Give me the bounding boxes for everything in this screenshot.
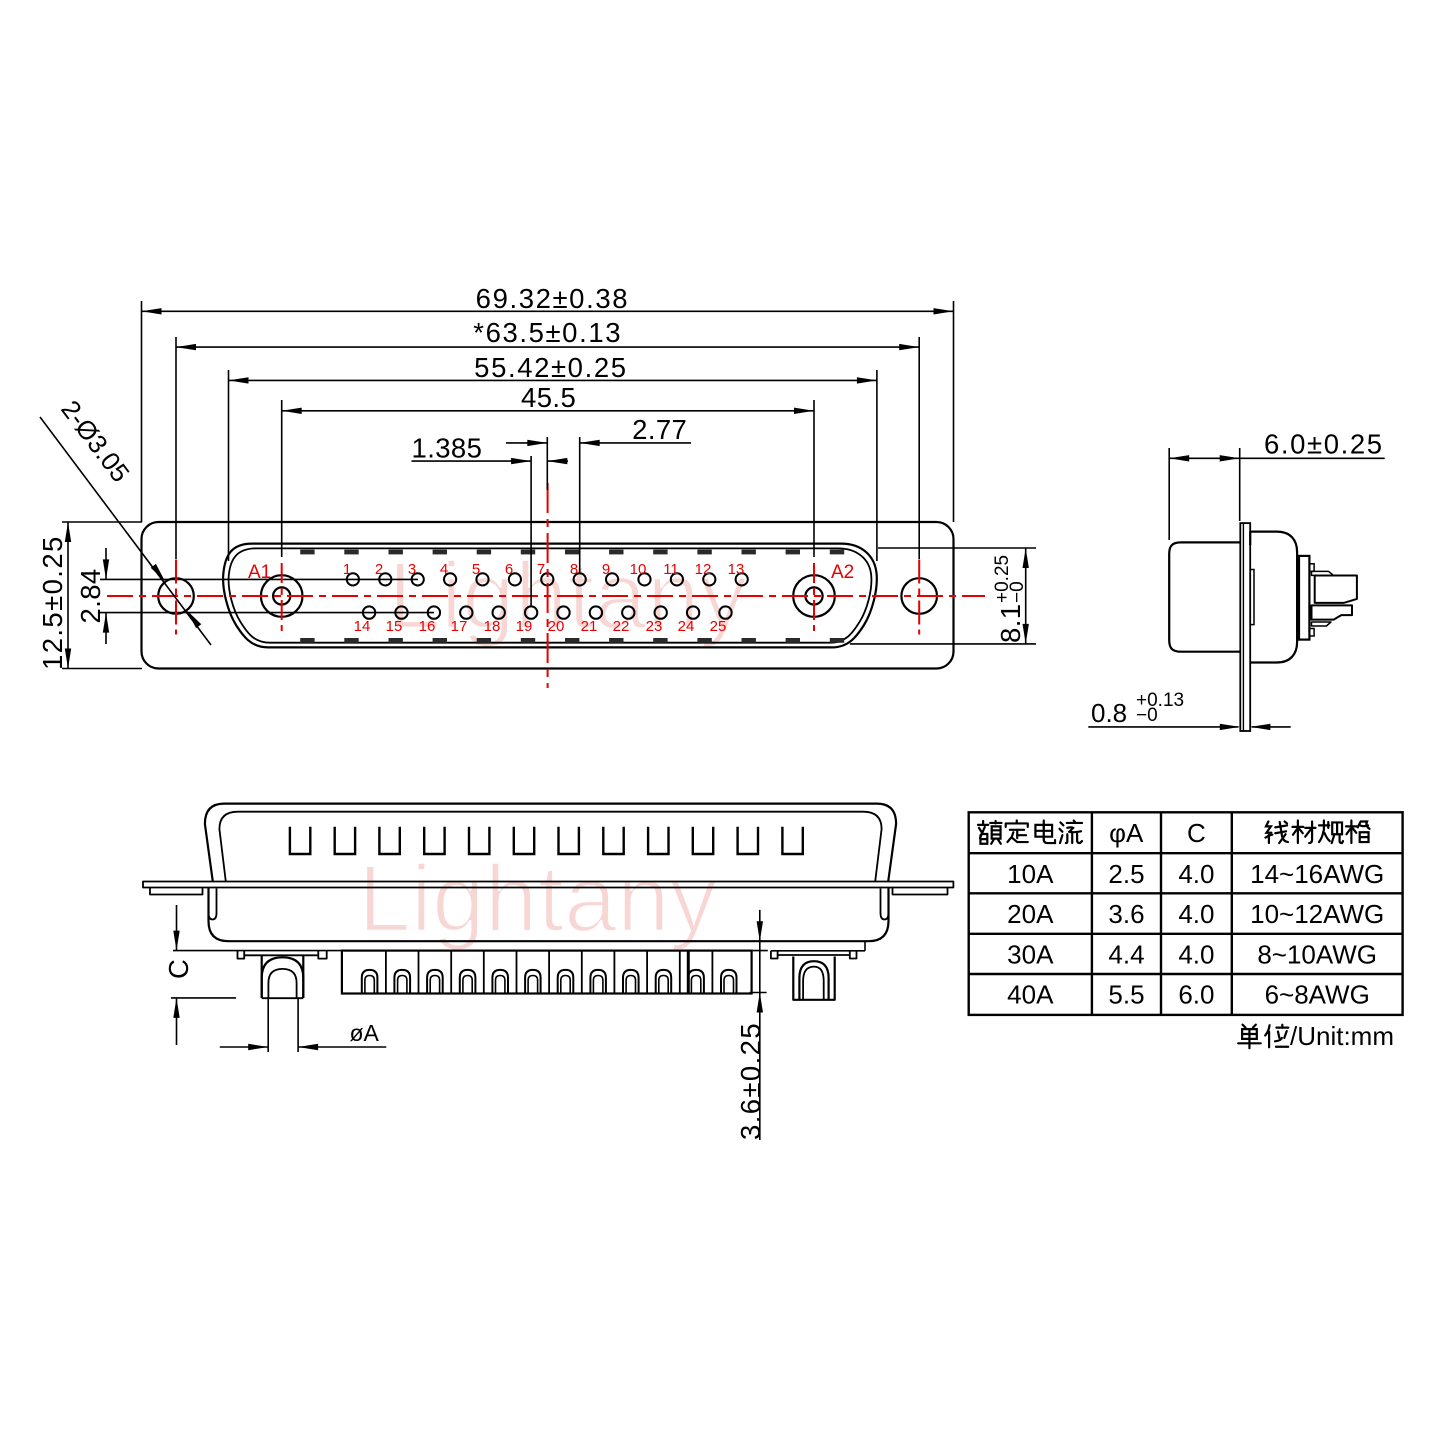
- svg-text:17: 17: [451, 618, 468, 635]
- svg-text:30A: 30A: [1007, 939, 1054, 969]
- svg-text:10~12AWG: 10~12AWG: [1250, 899, 1384, 929]
- svg-text:−0: −0: [1007, 581, 1028, 603]
- svg-text:2: 2: [375, 561, 383, 578]
- svg-text:19: 19: [516, 618, 533, 635]
- svg-text:4.0: 4.0: [1178, 859, 1214, 889]
- svg-text:−0: −0: [1136, 705, 1158, 726]
- svg-text:3: 3: [408, 561, 416, 578]
- svg-text:40A: 40A: [1007, 980, 1054, 1010]
- svg-text:5.5: 5.5: [1108, 980, 1144, 1010]
- svg-text:16: 16: [419, 618, 436, 635]
- svg-text:3.6±0.25: 3.6±0.25: [735, 1022, 766, 1140]
- svg-text:/Unit:mm: /Unit:mm: [1290, 1021, 1394, 1051]
- svg-text:C: C: [163, 959, 194, 979]
- svg-text:0.8: 0.8: [1091, 698, 1127, 728]
- svg-text:8: 8: [570, 561, 578, 578]
- svg-text:φA: φA: [1109, 818, 1144, 848]
- svg-text:5: 5: [472, 561, 480, 578]
- svg-text:24: 24: [678, 618, 695, 635]
- svg-text:55.42±0.25: 55.42±0.25: [474, 352, 627, 383]
- svg-text:9: 9: [602, 561, 610, 578]
- svg-text:6.0±0.25: 6.0±0.25: [1264, 429, 1384, 460]
- svg-text:20A: 20A: [1007, 899, 1054, 929]
- svg-text:*63.5±0.13: *63.5±0.13: [473, 317, 622, 348]
- svg-text:4.4: 4.4: [1108, 939, 1144, 969]
- svg-text:4.0: 4.0: [1178, 899, 1214, 929]
- svg-text:1.385: 1.385: [412, 433, 483, 464]
- svg-text:8.1: 8.1: [995, 604, 1026, 643]
- svg-text:15: 15: [386, 618, 403, 635]
- svg-text:23: 23: [646, 618, 663, 635]
- svg-text:3.6: 3.6: [1108, 899, 1144, 929]
- svg-text:12.5±0.25: 12.5±0.25: [37, 535, 68, 670]
- svg-text:25: 25: [710, 618, 727, 635]
- svg-text:4.0: 4.0: [1178, 939, 1214, 969]
- svg-text:22: 22: [613, 618, 630, 635]
- svg-text:øA: øA: [350, 1020, 380, 1046]
- svg-text:4: 4: [440, 561, 448, 578]
- svg-text:13: 13: [728, 561, 745, 578]
- svg-text:C: C: [1187, 818, 1206, 848]
- svg-text:Lightany: Lightany: [358, 846, 718, 952]
- svg-text:2.5: 2.5: [1108, 859, 1144, 889]
- svg-text:11: 11: [663, 561, 679, 578]
- svg-text:8~10AWG: 8~10AWG: [1257, 939, 1377, 969]
- svg-text:6~8AWG: 6~8AWG: [1265, 980, 1370, 1010]
- svg-text:2.77: 2.77: [632, 414, 687, 445]
- svg-text:14~16AWG: 14~16AWG: [1250, 859, 1384, 889]
- svg-text:14: 14: [354, 618, 371, 635]
- svg-text:21: 21: [581, 618, 598, 635]
- svg-text:10A: 10A: [1007, 859, 1054, 889]
- svg-text:10: 10: [630, 561, 647, 578]
- svg-text:20: 20: [548, 618, 565, 635]
- svg-text:1: 1: [343, 561, 351, 578]
- svg-text:12: 12: [695, 561, 712, 578]
- svg-text:7: 7: [537, 561, 545, 578]
- svg-text:6: 6: [505, 561, 513, 578]
- svg-text:18: 18: [484, 618, 501, 635]
- svg-text:69.32±0.38: 69.32±0.38: [476, 283, 629, 314]
- svg-text:6.0: 6.0: [1178, 980, 1214, 1010]
- svg-text:2.84: 2.84: [75, 568, 106, 623]
- svg-text:45.5: 45.5: [521, 382, 576, 413]
- svg-text:A2: A2: [831, 562, 854, 583]
